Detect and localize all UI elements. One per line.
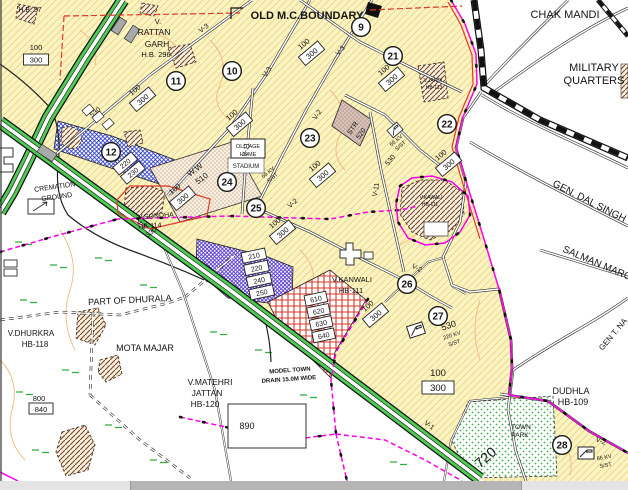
- dudhla-label-1: DUDHLA: [552, 386, 589, 396]
- jandi-label-1: V.JANDI: [424, 78, 443, 84]
- kawali-label-2: HB-111: [422, 202, 438, 208]
- dhurkra-label-2: HB-118: [22, 340, 49, 349]
- substation-icon-66kv-south: [578, 447, 594, 459]
- jandi-label-2: HB-113: [426, 85, 443, 91]
- building-small-rect-kanwali: [364, 252, 373, 259]
- svg-text:28: 28: [556, 441, 568, 452]
- scrollbar-thumb[interactable]: [130, 481, 522, 490]
- matehri-label-1: V.MATEHRI: [188, 377, 233, 387]
- svg-text:27: 27: [432, 312, 444, 323]
- town-park-label-2: PARK: [511, 432, 529, 439]
- plot-100: 100: [30, 43, 43, 52]
- military-label-2: QUARTERS: [564, 75, 625, 87]
- sector-circle-10: 10: [223, 62, 242, 81]
- matehri-label-2: JATTAN: [192, 388, 223, 398]
- kanwali-label-1: V.KANWALI: [332, 275, 372, 284]
- kawali-label-1: V.KAWALI: [420, 195, 443, 201]
- plot-in-kawali: [424, 222, 448, 236]
- map-canvas[interactable]: OLD M.C.BOUNDARY H.B. 57 CHAK MANDI MILI…: [0, 0, 628, 481]
- svg-text:24: 24: [221, 178, 233, 189]
- building-footprint-icon-b: [4, 269, 17, 276]
- svg-text:12: 12: [105, 148, 117, 159]
- rattan-label-2: RATTAN: [138, 27, 171, 37]
- sector-circle-11: 11: [167, 72, 186, 91]
- svg-text:21: 21: [387, 52, 399, 63]
- plot-300: 300: [30, 56, 43, 65]
- building-footprint-icon-a: [4, 260, 17, 267]
- hb57-label: H.B. 57: [18, 7, 41, 14]
- sector-circle-28: 28: [553, 436, 572, 455]
- plot-300-large: 300: [430, 383, 446, 394]
- sector-circle-23: 23: [301, 129, 320, 148]
- svg-text:10: 10: [226, 67, 238, 78]
- rattan-label-1: V.: [155, 17, 161, 26]
- sector-circle-27: 27: [429, 307, 448, 326]
- sector-circle-26: 26: [398, 275, 417, 294]
- svg-text:9: 9: [358, 23, 364, 34]
- sector-circle-24: 24: [218, 173, 237, 192]
- plot-890-label: 890: [239, 421, 254, 431]
- svg-text:11: 11: [171, 77, 182, 88]
- village-blob-near-12: [61, 127, 81, 149]
- sector-circle-9: 9: [352, 18, 371, 37]
- svg-text:23: 23: [304, 134, 316, 145]
- sector-circle-21: 21: [384, 47, 403, 66]
- map-viewport: OLD M.C.BOUNDARY H.B. 57 CHAK MANDI MILI…: [0, 0, 628, 490]
- old-mc-boundary-label: OLD M.C.BOUNDARY: [251, 10, 364, 22]
- plot-100-large: 100: [430, 368, 446, 379]
- dudhla-label-2: HB-109: [558, 397, 589, 407]
- sector-circle-25: 25: [247, 199, 266, 218]
- plot-800: 800: [33, 394, 46, 403]
- military-label-1: MILITARY: [569, 62, 619, 74]
- mota-majar-label: MOTA MAJAR: [116, 343, 174, 353]
- plot-840: 840: [35, 405, 48, 414]
- dhurkra-label-1: V.DHURKRA: [8, 329, 55, 338]
- rattan-label-3: GARH: [145, 39, 170, 49]
- chak-mandi-label: CHAK MANDI: [530, 9, 599, 21]
- rattan-label-4: H.B. 296: [141, 50, 170, 59]
- town-park-label-1: TOWN: [511, 424, 531, 431]
- kanwali-label-2: HB-111: [339, 286, 363, 295]
- svg-text:22: 22: [441, 120, 453, 131]
- stadium-label: STADIUM: [233, 164, 260, 170]
- svg-text:26: 26: [401, 280, 413, 291]
- matehri-label-3: HB-120: [191, 399, 220, 409]
- sector-circle-22: 22: [438, 115, 457, 134]
- sector-circle-12: 12: [102, 143, 121, 162]
- svg-text:25: 25: [250, 204, 262, 215]
- horizontal-scrollbar[interactable]: [0, 481, 628, 490]
